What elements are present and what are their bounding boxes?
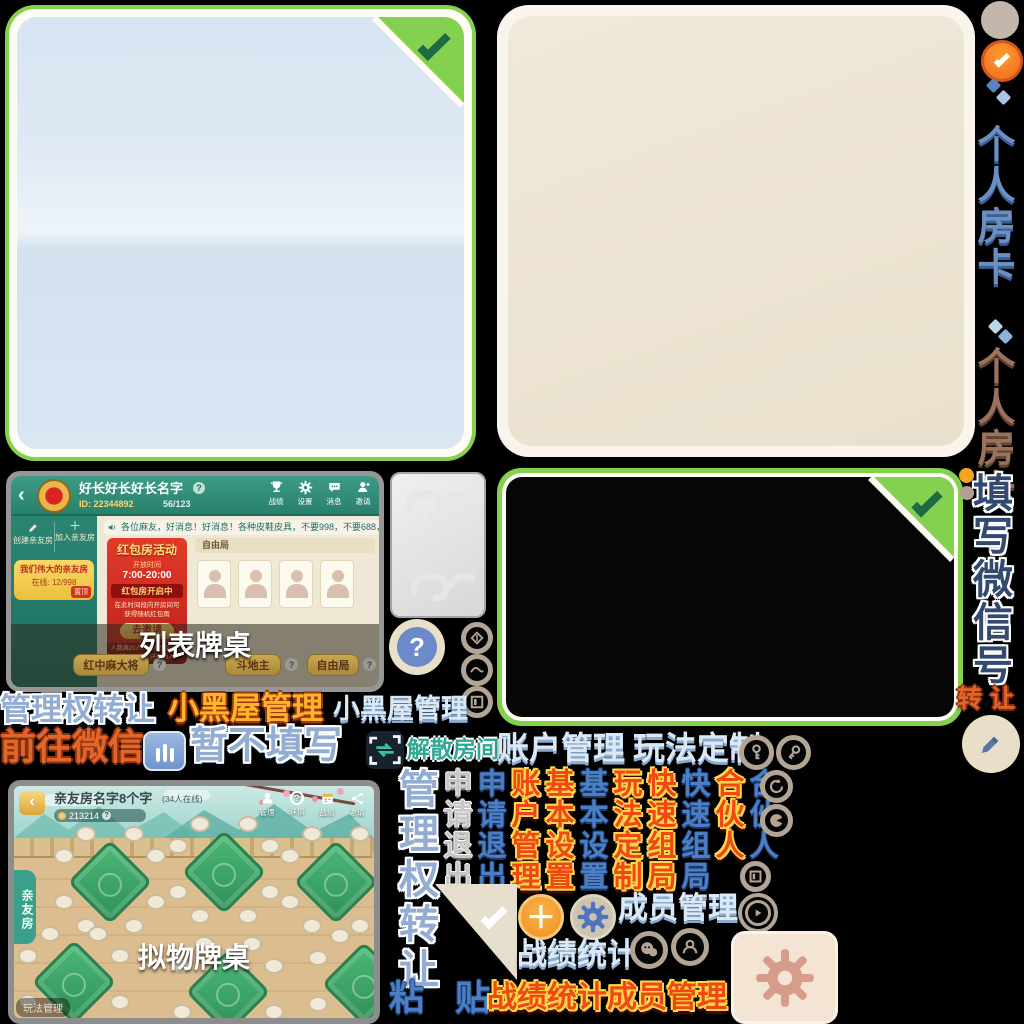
banner-time: 7:00-20:00 <box>107 570 187 581</box>
play-ring <box>745 900 771 926</box>
my-room-name: 我们伟大的亲友房 <box>16 563 92 575</box>
play-icon <box>751 906 765 920</box>
gear-icon <box>753 946 817 1010</box>
caption-list-table: 列表牌桌 <box>11 632 379 660</box>
label-stats: 战绩统计 <box>517 940 637 970</box>
vertical-menu-label: 申请退出 <box>435 768 469 892</box>
caption-real-table: 拟物牌桌 <box>14 944 374 972</box>
confirm-corner-badge[interactable] <box>435 884 517 980</box>
edit-pen-button[interactable] <box>962 715 1020 773</box>
vertical-menu-label: 快速组局 <box>673 768 707 892</box>
frame-icon <box>468 693 486 711</box>
grey-dot-icon[interactable] <box>981 1 1019 39</box>
refresh-button[interactable] <box>760 770 793 803</box>
plus-icon: ＋ <box>526 893 556 937</box>
avatar-placeholder[interactable] <box>238 560 272 608</box>
timer-button[interactable] <box>760 804 793 837</box>
card-back[interactable] <box>390 472 486 618</box>
room-title: 好长好长好长名字 <box>79 482 183 495</box>
person-icon <box>260 791 275 806</box>
mahjong-table[interactable] <box>278 824 380 940</box>
trophy-icon <box>269 480 284 495</box>
avatar-placeholder[interactable] <box>197 560 231 608</box>
beige-panel-body <box>508 16 964 446</box>
vertical-menu-label: 账户管理 <box>503 768 537 892</box>
blue-panel-body <box>17 17 464 449</box>
share-icon <box>350 791 365 806</box>
help-icon[interactable]: ? <box>193 482 205 494</box>
key-button[interactable] <box>739 735 774 770</box>
label-paste-2: 贴 <box>455 981 490 1016</box>
bar-icon <box>170 748 174 762</box>
vertical-menu-label: 玩法定制 <box>605 768 639 892</box>
diamond-bullet-icon <box>996 90 1012 106</box>
vertical-menu-label: 合伙人 <box>707 768 741 861</box>
label-fill-wechat-id: 填写微信号 <box>969 472 1009 687</box>
nav-details[interactable]: ? 详情 <box>284 791 310 817</box>
marquee-text: 各位麻友，好消息！好消息！各种皮鞋皮具，不要998，不要688，只要98元，只要… <box>121 523 381 532</box>
dissolve-room-button[interactable] <box>366 731 404 769</box>
bar-icon <box>163 744 167 762</box>
blue-panel-selected-corner <box>378 17 464 103</box>
scan-arrows-icon <box>366 731 404 769</box>
label-paste-1: 粘 <box>389 981 424 1016</box>
black-panel-body <box>506 477 954 717</box>
help-icon[interactable]: ? <box>102 811 111 820</box>
pie-icon <box>767 811 786 830</box>
nav-invite[interactable]: 邀请 <box>350 480 376 507</box>
side-tab-friends-room[interactable]: 亲友房 <box>14 870 36 944</box>
back-button[interactable]: ‹ <box>19 791 45 815</box>
table-top <box>68 840 153 925</box>
speaker-icon <box>107 522 118 533</box>
diamond-suit-button[interactable] <box>461 622 493 654</box>
nav-settings[interactable]: 设置 <box>292 480 318 507</box>
vertical-menu-label: 基本设置 <box>571 768 605 892</box>
label-transfer: 转让 <box>957 687 1023 712</box>
label-stats-members: 战绩统计成员管理 <box>487 983 727 1013</box>
diamond-icon <box>468 629 486 647</box>
room-id-pill: 213214 ? <box>54 809 146 822</box>
nav-label: 消息 <box>327 496 342 507</box>
nav-records[interactable]: 战绩 <box>263 480 289 507</box>
table-top <box>294 840 379 925</box>
add-button[interactable]: ＋ <box>518 894 564 940</box>
nav-label: 邀请 <box>350 807 365 818</box>
mahjong-table[interactable] <box>306 926 380 1024</box>
label-account-manage: 账户管理 <box>497 732 625 764</box>
key-icon <box>747 743 766 762</box>
settings-button[interactable] <box>570 894 616 940</box>
lobby-list-screenshot: ‹ 好长好长好长名字 ? ID: 22344892 56/123 战绩 设置 消… <box>6 471 384 692</box>
calendar-icon <box>320 791 335 806</box>
nav-manage[interactable]: 管理 <box>254 791 280 818</box>
room-subtitle: (34人在线) <box>162 795 203 804</box>
nav-label: 详情 <box>290 806 305 817</box>
back-icon[interactable]: ‹ <box>18 484 25 507</box>
join-room-label: 加入亲友房 <box>55 532 95 543</box>
marquee-bar: 各位麻友，好消息！好消息！各种皮鞋皮具，不要998，不要688，只要98元，只要… <box>103 520 381 535</box>
lobby-table-screenshot: ‹ 亲友房名字8个字 (34人在线) 213214 ? 管理 ? 详情 战绩 邀… <box>8 780 380 1024</box>
nav-label: 邀请 <box>356 496 371 507</box>
nav-label: 管理 <box>260 807 275 818</box>
nav-messages[interactable]: 消息 <box>321 480 347 507</box>
person-icon <box>680 937 700 957</box>
pen-icon <box>976 729 1006 759</box>
nav-label: 战绩 <box>269 496 284 507</box>
avatar-placeholder[interactable] <box>279 560 313 608</box>
room-emblem-icon <box>37 479 71 513</box>
pencil-icon <box>27 521 40 534</box>
bar-icon <box>156 748 160 762</box>
nav-label: 设置 <box>298 496 313 507</box>
stop-button[interactable] <box>740 861 771 892</box>
seat-row <box>197 560 354 608</box>
join-room-button[interactable]: ＋ 加入亲友房 <box>55 521 95 543</box>
banner-title: 红包房活动 <box>107 541 187 558</box>
gameplay-manage-pill[interactable]: 玩法管理 <box>16 998 70 1017</box>
black-panel <box>497 468 963 726</box>
lobby-header: ‹ 好长好长好长名字 ? ID: 22344892 56/123 战绩 设置 消… <box>11 476 379 516</box>
settings-card-button[interactable] <box>731 931 838 1024</box>
room-id: ID: 22344892 <box>79 500 134 509</box>
blue-panel <box>5 5 476 461</box>
gear-icon <box>576 900 610 934</box>
mahjong-table[interactable] <box>166 814 282 930</box>
banner-open-label: 开放时间 <box>107 560 187 570</box>
play-button[interactable] <box>738 893 778 933</box>
label-black-room-pale: 小黑屋管理 <box>333 696 468 723</box>
cloud-scroll-ornament-icon <box>392 474 486 618</box>
mahjong-table[interactable] <box>52 824 168 940</box>
chat-icon <box>327 480 342 495</box>
table-top <box>182 830 267 915</box>
wave-icon <box>468 661 486 679</box>
nav-invite[interactable]: 邀请 <box>344 791 370 818</box>
invite-person-icon <box>356 480 371 495</box>
question-icon: ? <box>397 627 437 667</box>
confirm-check-button[interactable] <box>981 40 1023 82</box>
my-room-card[interactable]: 我们伟大的亲友房 在线: 12/998 置顶 <box>14 560 94 600</box>
label-members: 成员管理 <box>618 894 738 924</box>
stop-icon <box>747 868 764 885</box>
tab-free-mode[interactable]: 自由局 <box>195 538 375 553</box>
member-count: 56/123 <box>163 500 191 509</box>
pin-top-tag[interactable]: 置顶 <box>71 586 91 598</box>
vertical-menu-label: 管理权转让 <box>386 768 435 993</box>
label-skip-fill: 暂不填写 <box>190 727 342 765</box>
label-black-room-gold: 小黑屋管理 <box>168 693 323 724</box>
nav-records[interactable]: 战绩 <box>314 791 340 818</box>
create-room-button[interactable]: 创建亲友房 <box>13 521 53 546</box>
check-icon <box>994 51 1010 67</box>
room-id: 213214 <box>69 811 99 821</box>
vertical-menu-label: 申请退出 <box>469 768 503 892</box>
black-panel-selected-corner <box>874 477 954 557</box>
label-dissolve-room: 解散房间 <box>407 738 499 761</box>
diamond-bullet-icon <box>998 329 1014 345</box>
profile-button[interactable] <box>671 928 709 966</box>
plus-icon: ＋ <box>69 521 81 531</box>
vertical-menu-label: 基本设置 <box>537 768 571 892</box>
nav-label: 战绩 <box>320 807 335 818</box>
coin-icon <box>58 812 66 820</box>
help-button[interactable]: ? <box>389 619 445 675</box>
key-alt-button[interactable] <box>776 735 811 770</box>
label-goto-wechat: 前往微信 <box>0 729 144 765</box>
badge-triangle <box>435 884 517 980</box>
tab-personal-room-card-blue[interactable]: 个人房卡 <box>973 124 1011 288</box>
banner-status: 红包房开启中 <box>111 584 183 598</box>
refresh-icon <box>767 777 786 796</box>
gear-icon <box>298 480 313 495</box>
avatar-placeholder[interactable] <box>320 560 354 608</box>
wechat-icon <box>638 939 660 961</box>
room-title: 亲友房名字8个字 <box>54 792 152 805</box>
wave-button[interactable] <box>461 654 493 686</box>
beige-panel <box>497 5 975 457</box>
menu-lines-button[interactable] <box>143 731 186 771</box>
banner-desc: 在此时间段内开房间可获得随机红包雨 <box>112 601 182 619</box>
create-room-label: 创建亲友房 <box>13 535 53 546</box>
vertical-menu-label: 快速组局 <box>639 768 673 892</box>
wechat-button[interactable] <box>630 931 668 969</box>
label-manage-transfer: 管理权转让 <box>0 694 155 725</box>
key-icon <box>780 739 807 766</box>
question-icon: ? <box>290 791 304 805</box>
